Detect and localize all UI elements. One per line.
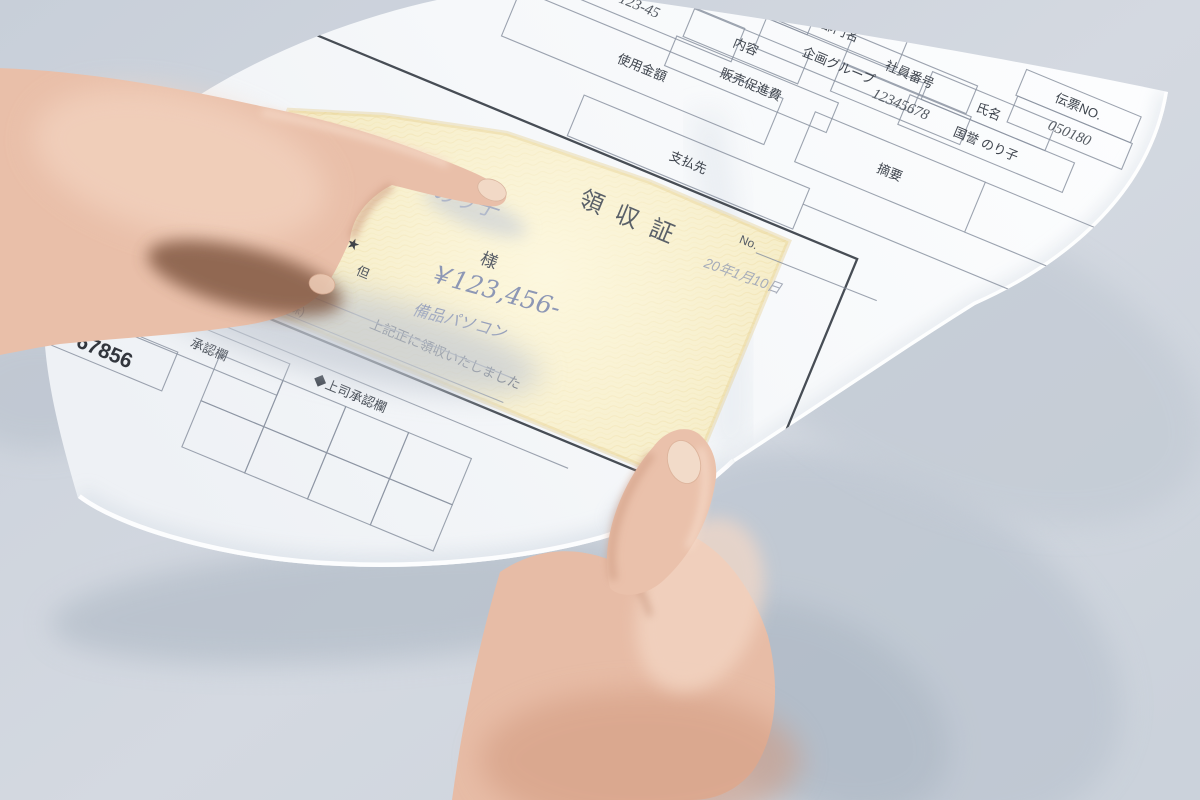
photo-of-expense-form: コード 123-45 部門名 企画グループ 内容 販売促進費 社員番号 1234… (0, 0, 1200, 800)
scene: コード 123-45 部門名 企画グループ 内容 販売促進費 社員番号 1234… (0, 0, 1200, 800)
